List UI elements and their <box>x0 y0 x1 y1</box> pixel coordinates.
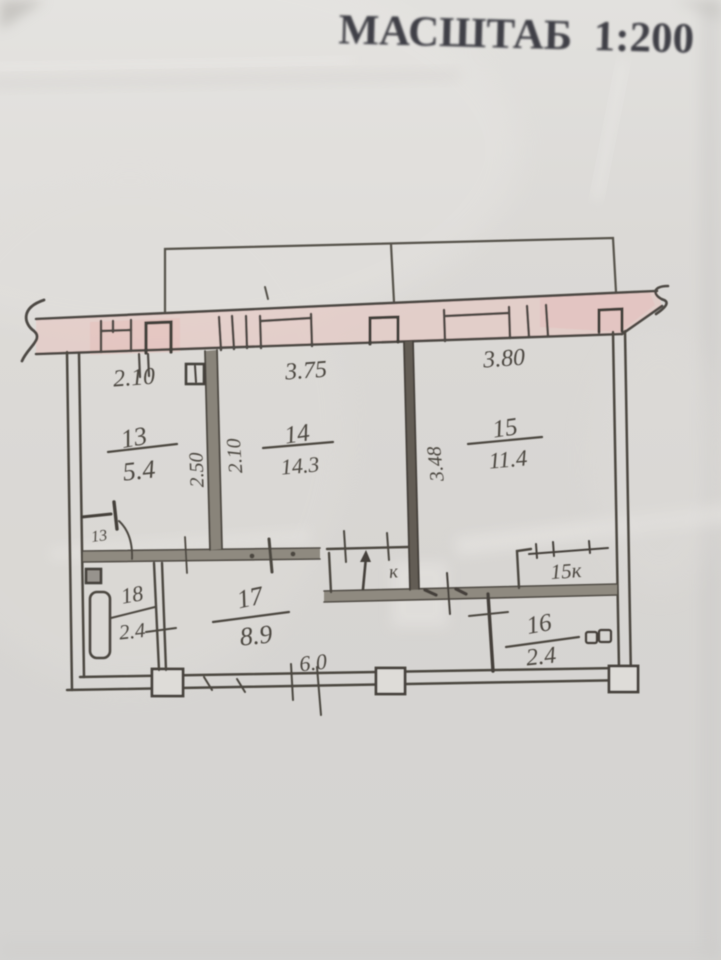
svg-text:6.0: 6.0 <box>298 649 328 677</box>
svg-text:11.4: 11.4 <box>488 445 529 473</box>
svg-text:3.75: 3.75 <box>283 357 328 386</box>
svg-text:МАСШТАБ 1:200: МАСШТАБ 1:200 <box>338 6 695 62</box>
svg-text:14.3: 14.3 <box>280 451 321 479</box>
svg-text:2.10: 2.10 <box>223 438 247 474</box>
svg-text:13: 13 <box>90 527 108 546</box>
svg-text:2.4: 2.4 <box>525 642 558 671</box>
svg-text:2.50: 2.50 <box>185 452 208 488</box>
svg-text:3.48: 3.48 <box>423 445 449 483</box>
svg-text:2.4: 2.4 <box>118 618 147 645</box>
svg-text:8.9: 8.9 <box>238 619 273 651</box>
svg-text:5.4: 5.4 <box>121 454 156 486</box>
svg-text:3.80: 3.80 <box>481 345 526 374</box>
svg-text:2.10: 2.10 <box>112 364 156 393</box>
svg-text:16: 16 <box>524 609 554 640</box>
svg-text:18: 18 <box>119 580 145 608</box>
svg-text:15к: 15к <box>550 558 583 584</box>
